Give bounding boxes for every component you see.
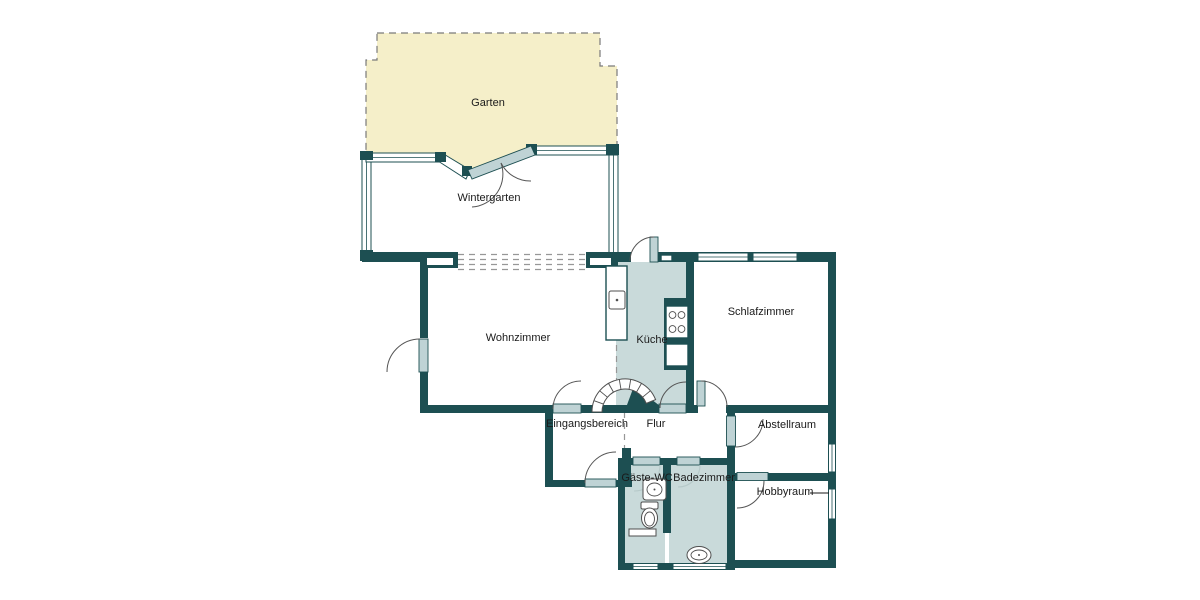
- badezimmer-window: [673, 564, 726, 570]
- door-wohnzimmer-exterior: [387, 339, 428, 372]
- room-label-badezimmer: Badezimmer: [673, 472, 735, 484]
- floorplan-canvas: Garten Wintergarten Wohnzimmer Küche Sch…: [0, 0, 1200, 600]
- room-label-abstellraum: Abstellraum: [758, 419, 816, 431]
- room-label-flur: Flur: [647, 418, 666, 430]
- schlafzimmer-window: [698, 253, 748, 261]
- kitchen-stove-counter: [664, 298, 690, 370]
- door-wohnzimmer-flur: [553, 381, 581, 413]
- door-entry: [585, 452, 616, 487]
- room-label-eingangsbereich: Eingangsbereich: [546, 418, 628, 430]
- room-label-wohnzimmer: Wohnzimmer: [486, 332, 551, 344]
- glass-post: [360, 151, 373, 160]
- glass-post: [435, 152, 446, 162]
- floorplan-drawing: [0, 0, 1200, 600]
- schlafzimmer-window: [753, 253, 797, 261]
- kitchen-sink-counter: [606, 266, 627, 340]
- abstellraum-window: [829, 444, 836, 472]
- room-label-hobbyraum: Hobbyraum: [757, 486, 814, 498]
- badezimmer-window: [633, 564, 658, 570]
- glass-post: [606, 144, 619, 155]
- room-label-gaeste-wc: Gäste-WC: [621, 472, 672, 484]
- door-schlafzimmer: [697, 381, 727, 407]
- room-label-garten: Garten: [471, 97, 505, 109]
- wc-shelf: [629, 529, 656, 536]
- sink-icon: [609, 291, 625, 309]
- bath-washbasin-icon: [687, 547, 711, 564]
- door-kueche-exterior: [630, 237, 658, 262]
- toilet-icon: [641, 502, 658, 528]
- room-label-kueche: Küche: [636, 334, 667, 346]
- room-label-schlafzimmer: Schlafzimmer: [728, 306, 795, 318]
- hobbyraum-window: [829, 489, 836, 519]
- room-label-wintergarten: Wintergarten: [458, 192, 521, 204]
